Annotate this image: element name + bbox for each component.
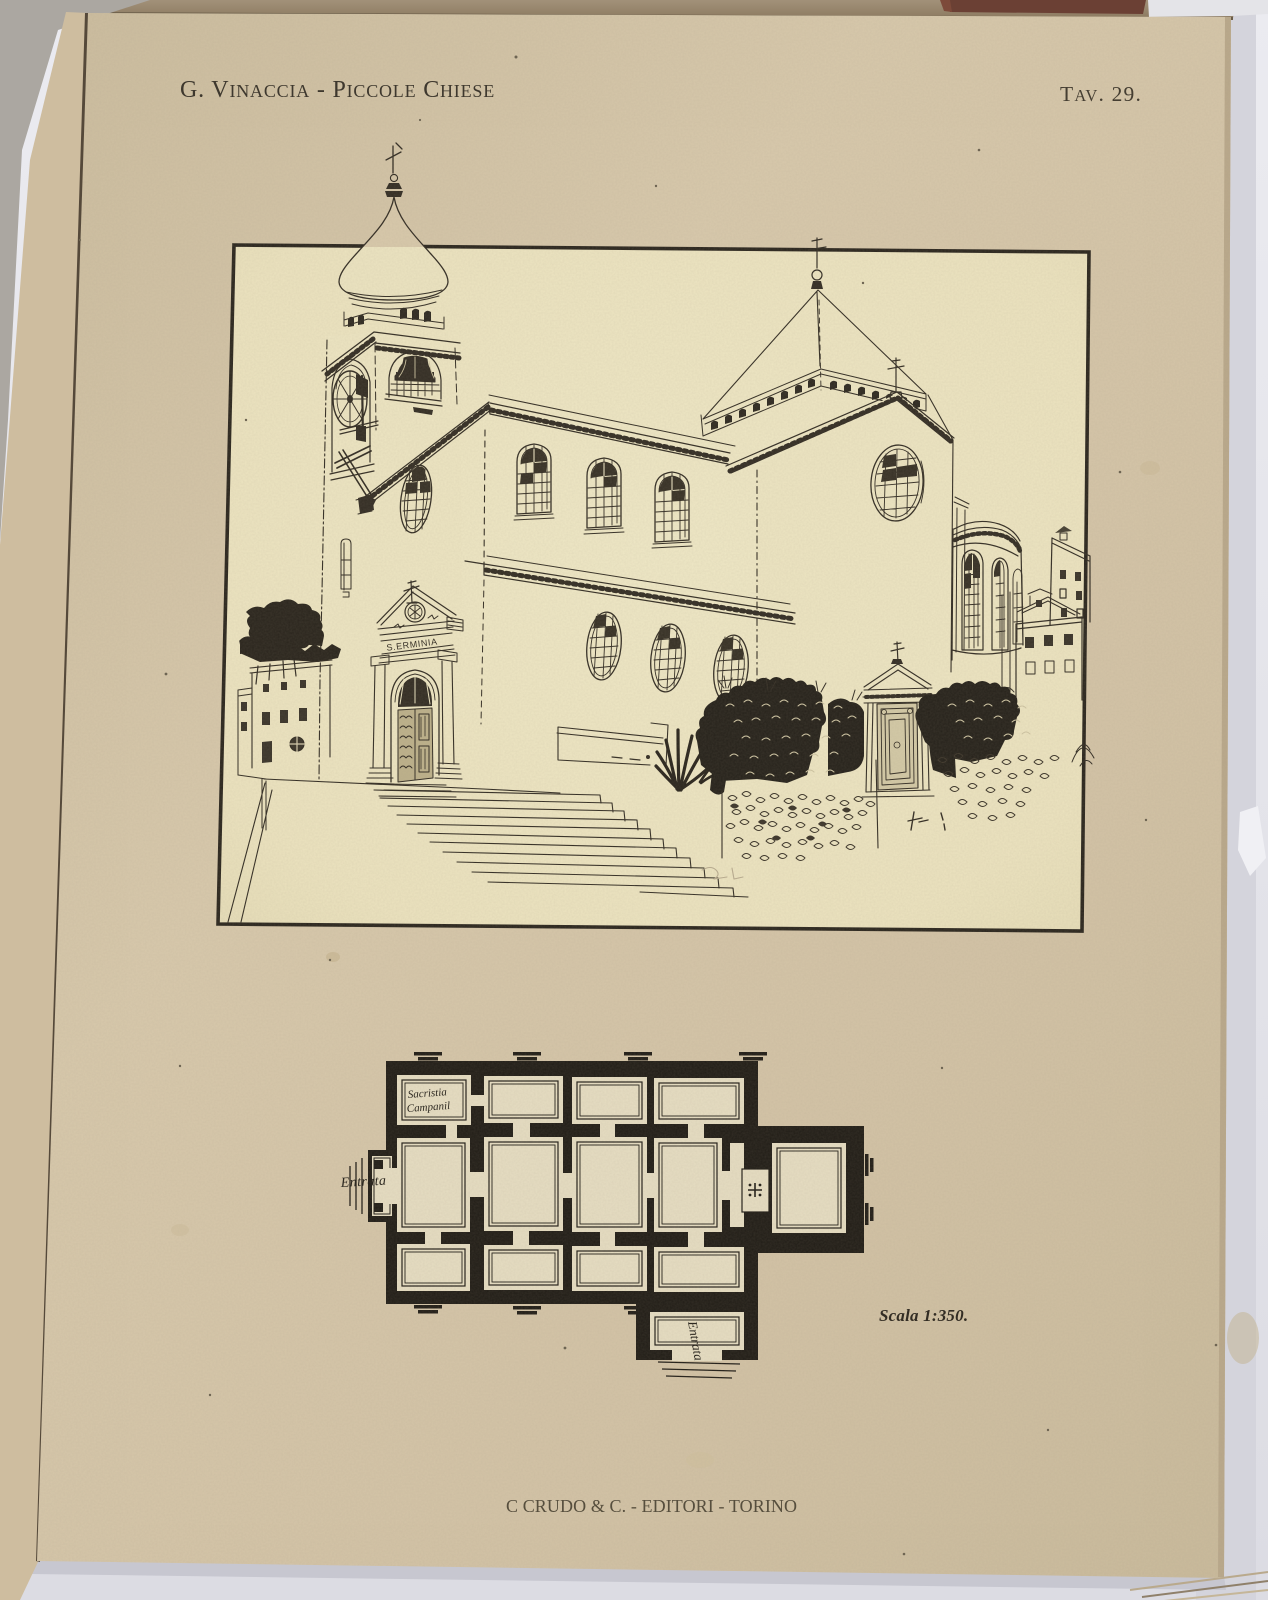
svg-text:TAV. 29.: TAV. 29. (1060, 82, 1142, 106)
svg-text:C CRUDO & C. - EDITORI - TO: C CRUDO & C. - EDITORI - TORINO (506, 1496, 797, 1516)
svg-text:G. VINACCIA - PICCOLE CHIESE: G. VINACCIA - PICCOLE CHIESE (180, 77, 495, 103)
svg-text:Scala 1:350.: Scala 1:350. (879, 1306, 968, 1325)
